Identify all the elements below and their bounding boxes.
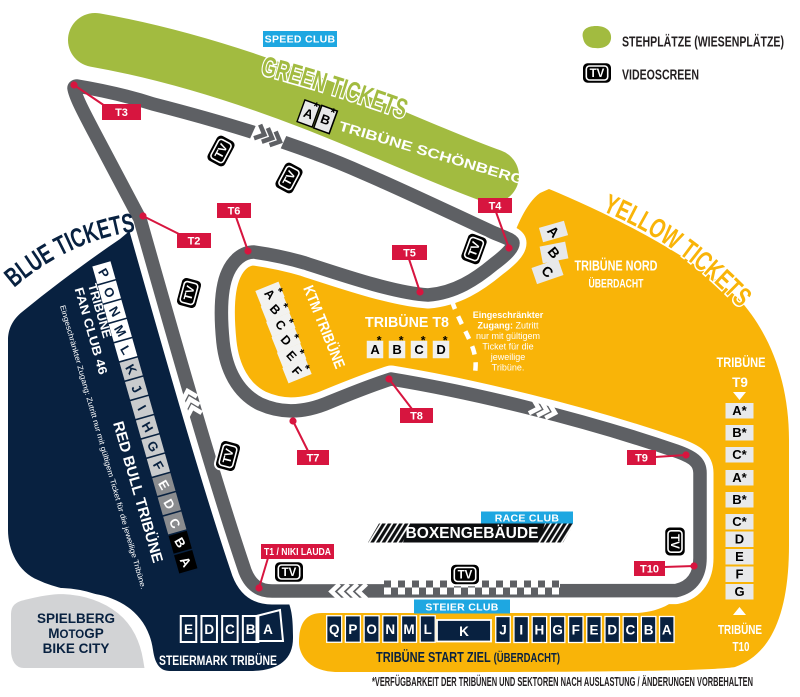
svg-text:BOXENGEBÄUDE: BOXENGEBÄUDE	[406, 525, 539, 542]
svg-text:Q: Q	[329, 622, 340, 637]
svg-text:jeweilige: jeweilige	[490, 352, 526, 362]
svg-text:T8: T8	[410, 410, 423, 422]
svg-text:T9: T9	[635, 452, 648, 464]
svg-text:C*: C*	[732, 514, 747, 529]
svg-text:E: E	[589, 622, 598, 637]
svg-text:T1 / NIKI LAUDA: T1 / NIKI LAUDA	[264, 547, 331, 558]
svg-text:C: C	[225, 622, 235, 637]
svg-text:A: A	[263, 622, 273, 637]
svg-text:T6: T6	[228, 205, 241, 217]
svg-text:STEIER CLUB: STEIER CLUB	[425, 602, 498, 614]
svg-text:TRIBÜNE START ZIEL (ÜBERDACHT): TRIBÜNE START ZIEL (ÜBERDACHT)	[376, 649, 560, 666]
svg-text:D: D	[735, 532, 744, 547]
svg-text:Eingeschränkter: Eingeschränkter	[473, 310, 544, 320]
svg-text:L: L	[424, 622, 432, 637]
svg-text:T2: T2	[188, 235, 201, 247]
svg-text:VIDEOSCREEN: VIDEOSCREEN	[622, 68, 699, 84]
svg-text:Ticket für die: Ticket für die	[482, 342, 533, 352]
svg-text:*VERFÜGBARKEIT DER TRIBÜNEN UN: *VERFÜGBARKEIT DER TRIBÜNEN UND SEKTOREN…	[372, 674, 753, 689]
svg-text:C*: C*	[732, 447, 747, 462]
svg-text:A: A	[662, 622, 672, 637]
svg-text:A*: A*	[732, 470, 747, 485]
svg-text:Zugang: Zutritt: Zugang: Zutritt	[477, 321, 539, 331]
svg-text:P: P	[348, 622, 357, 637]
svg-text:N: N	[385, 622, 395, 637]
svg-text:TRIBÜNE NORD: TRIBÜNE NORD	[575, 258, 658, 275]
svg-text:J: J	[499, 622, 507, 637]
svg-text:SPIELBERGMOTOGPBIKE CITY: SPIELBERGMOTOGPBIKE CITY	[37, 611, 115, 656]
svg-text:F: F	[572, 622, 580, 637]
svg-text:TRIBÜNE T8: TRIBÜNE T8	[365, 314, 449, 331]
svg-text:Tribüne.: Tribüne.	[492, 363, 525, 373]
svg-text:T4: T4	[489, 200, 503, 212]
svg-text:B*: B*	[732, 492, 747, 507]
svg-text:M: M	[403, 622, 414, 637]
svg-text:E: E	[735, 549, 744, 564]
svg-text:T3: T3	[115, 107, 128, 119]
svg-text:T7: T7	[307, 452, 320, 464]
svg-text:D: D	[607, 622, 617, 637]
svg-text:A*: A*	[732, 403, 747, 418]
svg-text:T10: T10	[640, 563, 659, 575]
svg-text:T9: T9	[732, 375, 748, 390]
svg-text:B*: B*	[732, 425, 747, 440]
svg-text:C: C	[626, 622, 636, 637]
svg-text:O: O	[366, 622, 377, 637]
svg-text:I: I	[519, 622, 523, 637]
svg-text:STEHPLÄTZE (WIESENPLÄTZE): STEHPLÄTZE (WIESENPLÄTZE)	[622, 34, 784, 51]
svg-text:*: *	[377, 334, 382, 348]
svg-text:TRIBÜNE: TRIBÜNE	[717, 355, 766, 370]
svg-text:K: K	[459, 624, 469, 639]
svg-text:B: B	[644, 622, 654, 637]
svg-text:F: F	[736, 567, 744, 582]
svg-text:ÜBERDACHT: ÜBERDACHT	[589, 278, 644, 291]
svg-text:*: *	[421, 334, 426, 348]
svg-text:TRIBÜNE: TRIBÜNE	[718, 622, 762, 637]
svg-text:STEIERMARK TRIBÜNE: STEIERMARK TRIBÜNE	[159, 653, 277, 668]
svg-text:B: B	[246, 622, 256, 637]
svg-text:D: D	[204, 622, 214, 637]
svg-text:H: H	[535, 622, 545, 637]
svg-text:*: *	[443, 334, 448, 348]
svg-text:G: G	[734, 584, 744, 599]
svg-text:T10: T10	[733, 639, 750, 654]
svg-text:RACE CLUB: RACE CLUB	[495, 513, 560, 525]
svg-text:SPEED CLUB: SPEED CLUB	[265, 34, 336, 46]
svg-text:nur mit gültigem: nur mit gültigem	[476, 331, 540, 341]
svg-text:T5: T5	[403, 247, 416, 259]
svg-text:G: G	[552, 622, 563, 637]
svg-text:E: E	[184, 622, 193, 637]
svg-text:*: *	[399, 334, 404, 348]
